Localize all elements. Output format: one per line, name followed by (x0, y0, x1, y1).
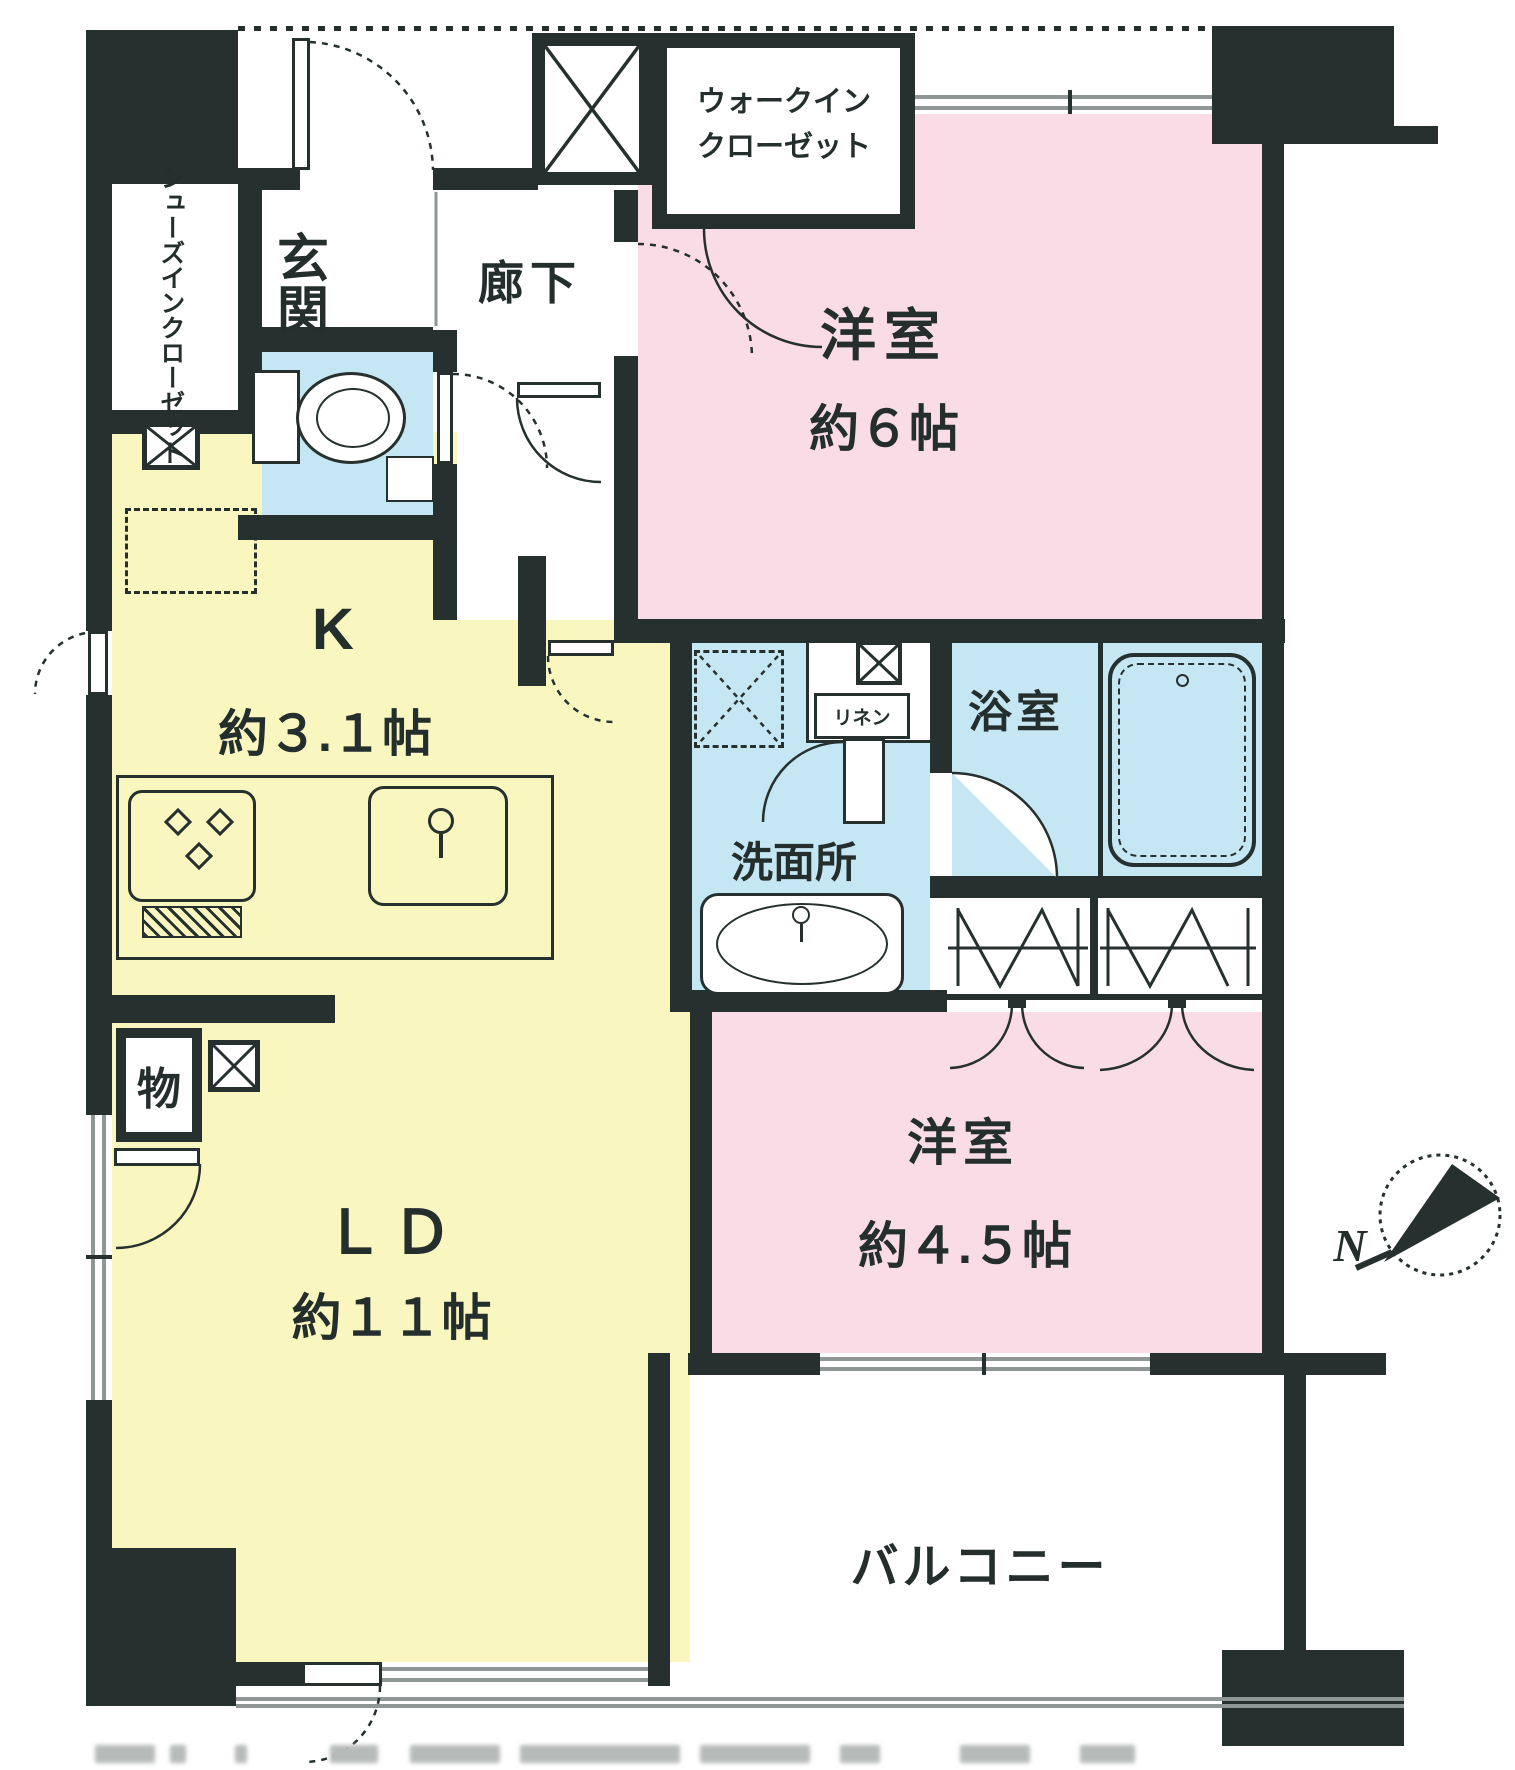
property-dotted-line (238, 26, 1212, 31)
wall-ld-right-lower (648, 1353, 670, 1686)
hall-door-leaf (517, 382, 601, 398)
kitchen-name-label: K (298, 594, 368, 664)
wall-left-outer (86, 30, 112, 1706)
washroom-door-leaf (843, 738, 885, 824)
vanity-faucet (792, 906, 810, 924)
sink-faucet-icon (428, 808, 454, 834)
wall-west6-left-lower (614, 356, 638, 643)
western-room-45-area (712, 1012, 1262, 1353)
closet-bottom-line (945, 994, 1263, 1000)
hallway-label: 廊下 (452, 252, 608, 308)
bath-tub-ledge-line (1098, 643, 1103, 876)
toilet-bowl-inner (316, 388, 390, 448)
window-west6-line2 (915, 106, 1212, 110)
wall-west45-left (690, 1012, 712, 1353)
wall-west45-bottom-right (1150, 1353, 1386, 1375)
bathroom-label: 浴室 (946, 676, 1086, 740)
balcony-door-leaf (302, 1662, 382, 1686)
window-ld-line1 (382, 1667, 648, 1671)
toilet-counter (386, 456, 434, 502)
western6-size-label: 約６帖 (756, 392, 1012, 458)
wall-toilet-bottom (238, 515, 457, 540)
washroom-label: 洗面所 (692, 830, 896, 888)
balcony-edge-line1 (236, 1697, 1404, 1701)
compass-north-label: N (1322, 1218, 1378, 1272)
wall-toilet-right-upper (433, 330, 457, 372)
wall-west45-bottom-left (688, 1353, 820, 1375)
wall-kitchen-lower (110, 995, 335, 1023)
stove-icon (128, 790, 256, 902)
window-west45-tick (982, 1353, 986, 1375)
linen-label: リネン (817, 696, 907, 736)
balcony-edge-line2 (236, 1704, 1404, 1708)
pipe-space-washroom (856, 641, 902, 685)
sink-icon (368, 786, 508, 906)
floor-plan: リネン (0, 0, 1515, 1770)
window-ld-left-tick (86, 1255, 112, 1259)
wall-right-outer (1262, 92, 1284, 1375)
bathtub-inner (1118, 663, 1246, 857)
wall-stub-top-right (1394, 126, 1438, 144)
wall-closet-divider (1090, 898, 1098, 998)
toilet-door-leaf (437, 372, 453, 464)
western45-name-label: 洋室 (868, 1106, 1058, 1172)
stove-grill-icon (142, 906, 242, 938)
wall-washroom-left (670, 643, 692, 1012)
storage-label: 物 (126, 1042, 192, 1128)
toilet-tank-icon (252, 370, 300, 464)
window-west6-top (915, 90, 1212, 114)
ld-name-label: ＬＤ (312, 1190, 472, 1264)
window-ld-line2 (382, 1678, 648, 1682)
bathtub-drain (1176, 674, 1189, 687)
kitchen-hall-door-leaf (548, 640, 614, 656)
ld-size-label: 約１１帖 (244, 1282, 539, 1346)
balcony-label: バルコニー (790, 1532, 1170, 1592)
western6-name-label: 洋室 (776, 296, 992, 366)
entrance-door-leaf (292, 38, 310, 170)
washroom-notch-edge (806, 643, 809, 743)
pipe-space-kitchen (208, 1040, 260, 1092)
shoes-closet-label: シューズインクローゼット (118, 205, 222, 425)
window-west6-line1 (915, 95, 1212, 99)
storage-door-leaf (114, 1148, 200, 1166)
kitchen-door-leaf (88, 631, 108, 695)
window-west6-tick (1068, 90, 1072, 114)
wall-entrance-right (433, 168, 538, 190)
fridge-space-icon (125, 508, 257, 594)
wall-balcony-right (1284, 1375, 1306, 1652)
wall-bath-bottom (930, 876, 1284, 898)
walk-in-closet-label: ウォークインクローゼット (660, 62, 908, 188)
wall-west6-bottom (614, 619, 1285, 643)
wall-toilet-right-lower (433, 464, 457, 620)
kitchen-size-label: 約３.１帖 (160, 698, 490, 762)
pillar-top-right (1212, 26, 1394, 144)
linen-shelf-box: リネン (814, 693, 910, 739)
wall-west6-left-upper (614, 190, 638, 242)
closet-hanger-icons (948, 908, 1256, 986)
entrance-door-arc (310, 42, 433, 170)
vanity-faucet-stem (800, 924, 803, 942)
wall-hall-kitchen-stub (518, 556, 546, 686)
western45-size-label: 約４.５帖 (810, 1210, 1120, 1274)
sink-faucet-stem (439, 834, 443, 858)
entrance-label: 玄関 (266, 198, 330, 368)
washer-space-icon (694, 650, 784, 748)
window-ld-bottom (382, 1662, 648, 1686)
wall-ld-bottom-left (110, 1662, 302, 1686)
hall-closet-box (532, 33, 652, 185)
